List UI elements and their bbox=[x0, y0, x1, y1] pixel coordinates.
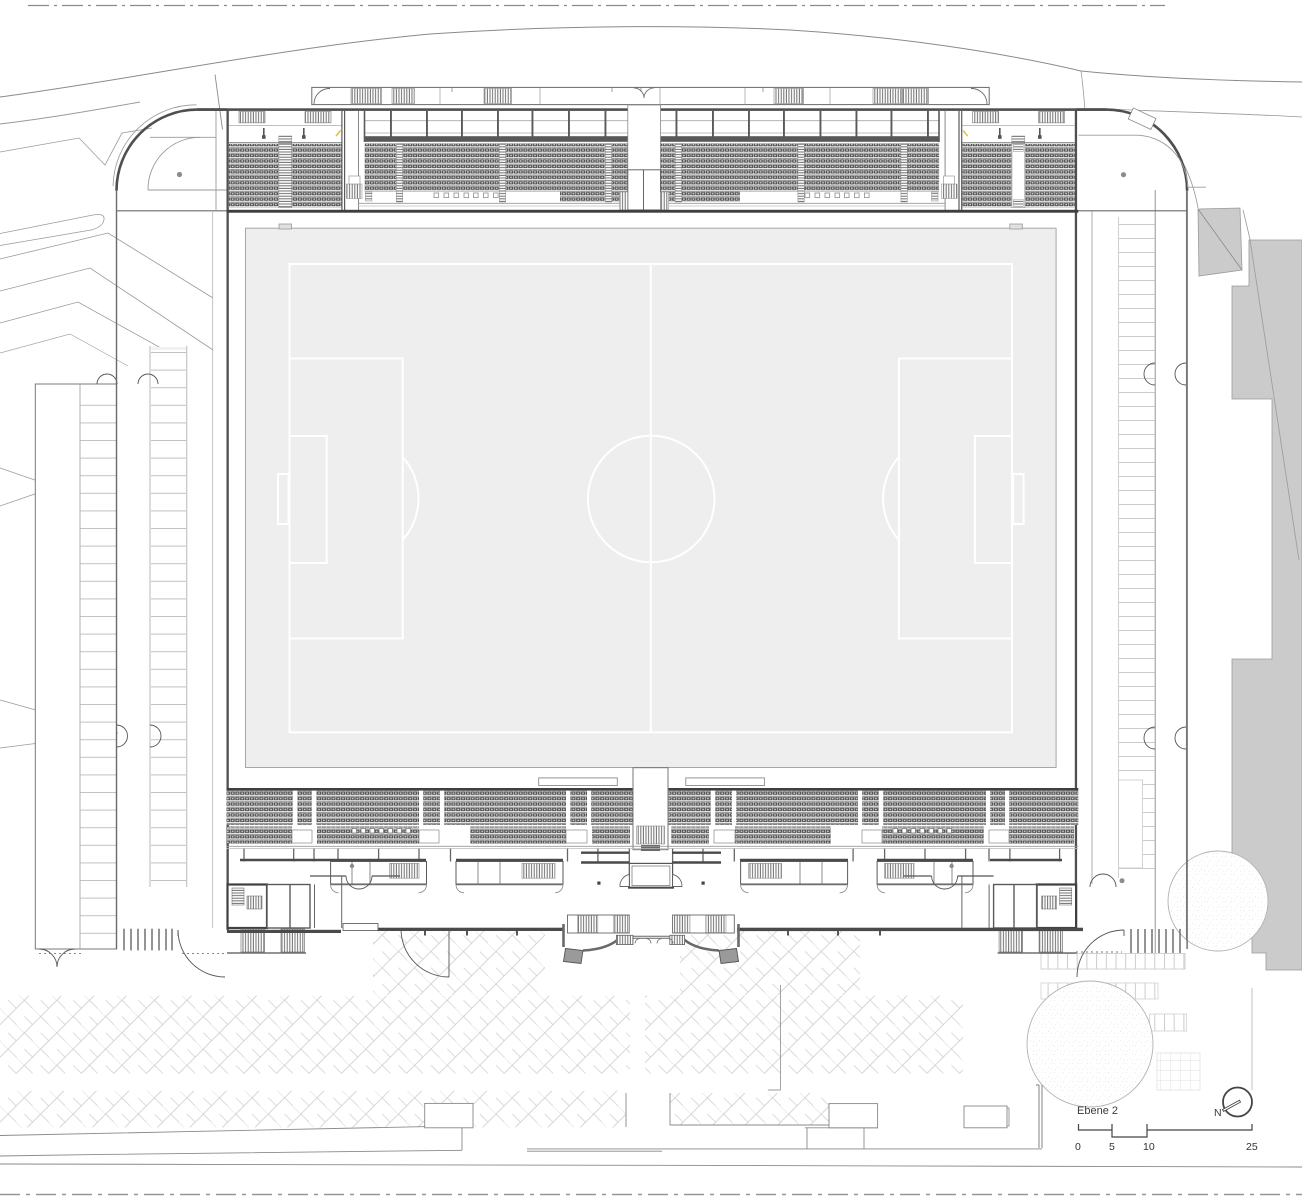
svg-text:N: N bbox=[1214, 1107, 1222, 1119]
svg-text:10: 10 bbox=[1143, 1141, 1155, 1153]
svg-text:0: 0 bbox=[1075, 1141, 1081, 1153]
svg-text:5: 5 bbox=[1109, 1141, 1115, 1153]
svg-text:Ebene 2: Ebene 2 bbox=[1077, 1105, 1118, 1117]
svg-text:25: 25 bbox=[1246, 1141, 1258, 1153]
